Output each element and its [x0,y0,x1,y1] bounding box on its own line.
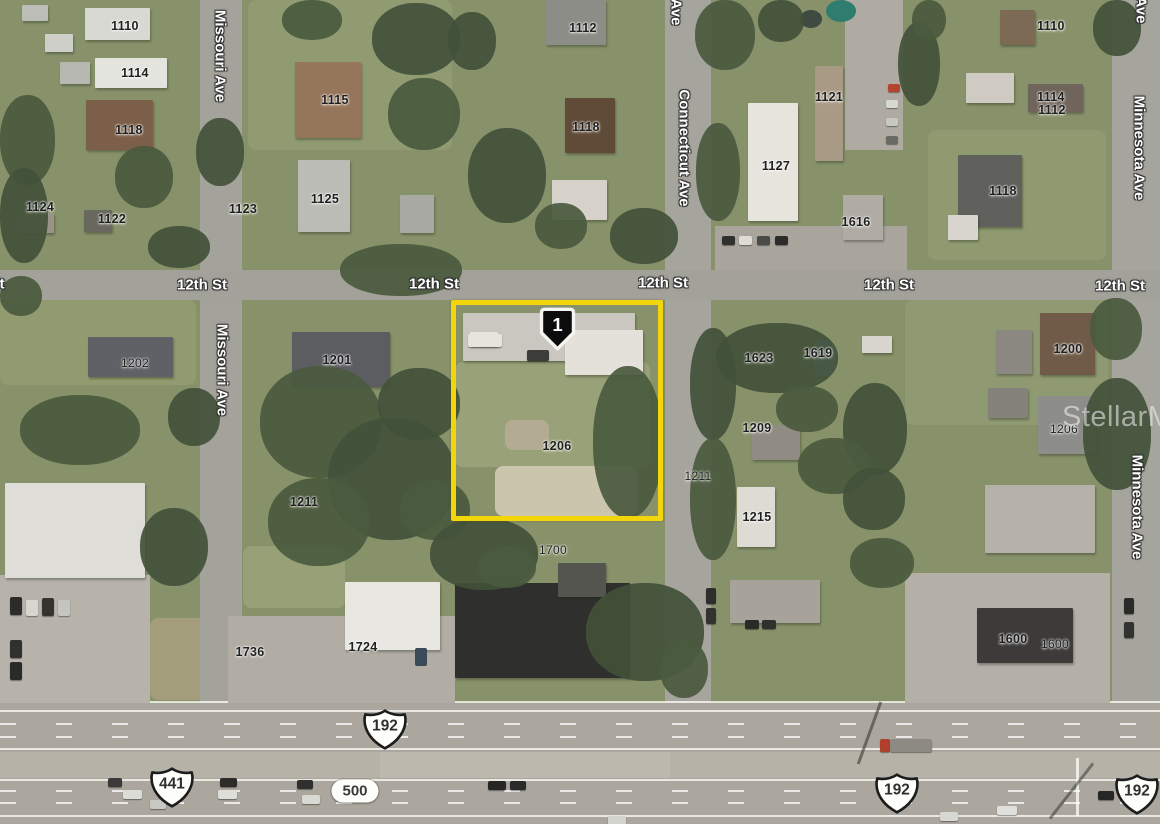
state-road-pill: 500 [331,780,378,803]
street-label-vertical: Minnesota Ave [1131,96,1148,201]
parcel-number-label: 1124 [26,200,54,214]
svg-text:192: 192 [1124,783,1150,800]
parcel-number-label: 1211 [290,495,318,509]
parcel-number-label: 1118 [989,184,1017,198]
street-label-vertical: Missouri Ave [214,324,231,416]
street-label-vertical: Minnesota Ave [1129,455,1146,560]
svg-text:192: 192 [372,718,398,735]
parcel-number-label: 1623 [744,351,773,365]
street-label: 12th St [638,275,688,292]
parcel-number-label: 1121 [815,90,843,104]
svg-text:192: 192 [884,782,910,799]
street-label: 12th St [409,276,459,293]
marker-pin-icon: 1 [539,306,576,353]
svg-text:441: 441 [159,776,185,793]
street-label: 12th St [177,277,227,294]
parcel-number-label: 1600 [998,632,1027,646]
street-label: 12th St [864,277,914,294]
parcel-number-label: 1201 [322,353,351,367]
parcel-number-label: 1112 [569,21,597,35]
street-label-vertical: Missouri Ave [212,10,229,102]
parcel-number-label: 1211 [684,469,711,483]
street-label-vertical: Ave [668,0,685,25]
parcel-number-label: 1110 [111,19,139,33]
us-route-shield: 192 [1114,774,1160,820]
marker-number: 1 [552,314,562,335]
parcel-number-label: 1200 [1053,342,1082,356]
parcel-number-label: 1724 [348,640,377,654]
parcel-number-label: 1600 [1041,637,1069,651]
parcel-number-label: 1115 [321,93,349,107]
satellite-map[interactable]: St12th St12th St12th St12th St12th StAve… [0,0,1160,824]
parcel-number-label: 1114 [1037,90,1065,104]
street-label-vertical: Connecticut Ave [676,89,693,206]
parcel-number-label: 1123 [229,202,257,216]
parcel-number-label: 1215 [742,510,771,524]
us-route-shield: 192 [874,773,920,819]
street-label: 12th St [1095,278,1145,295]
street-label: St [0,276,5,293]
parcel-number-label: 1700 [539,543,567,557]
parcel-number-label: 1202 [121,356,149,370]
parcel-number-label: 1110 [1037,19,1065,33]
property-marker-pin[interactable]: 1 [539,306,576,353]
parcel-number-label: 1736 [235,645,264,659]
parcel-number-label: 1122 [98,212,126,226]
parcel-number-label: 1118 [572,120,600,134]
parcel-number-label: 1114 [121,66,149,80]
parcel-number-label: 1118 [115,123,143,137]
parcel-number-label: 1112 [1038,103,1066,117]
parcel-number-label: 1209 [742,421,771,435]
us-route-shield: 441 [149,767,195,813]
parcel-number-label: 1127 [762,159,790,173]
us-route-shield: 192 [362,709,408,755]
parcel-number-label: 1125 [311,192,339,206]
parcel-number-label: 1619 [803,346,832,360]
street-label-vertical: Ave [1133,0,1150,23]
stellar-mls-watermark: StellarMLS [1062,401,1160,434]
parcel-number-label: 1616 [841,215,870,229]
